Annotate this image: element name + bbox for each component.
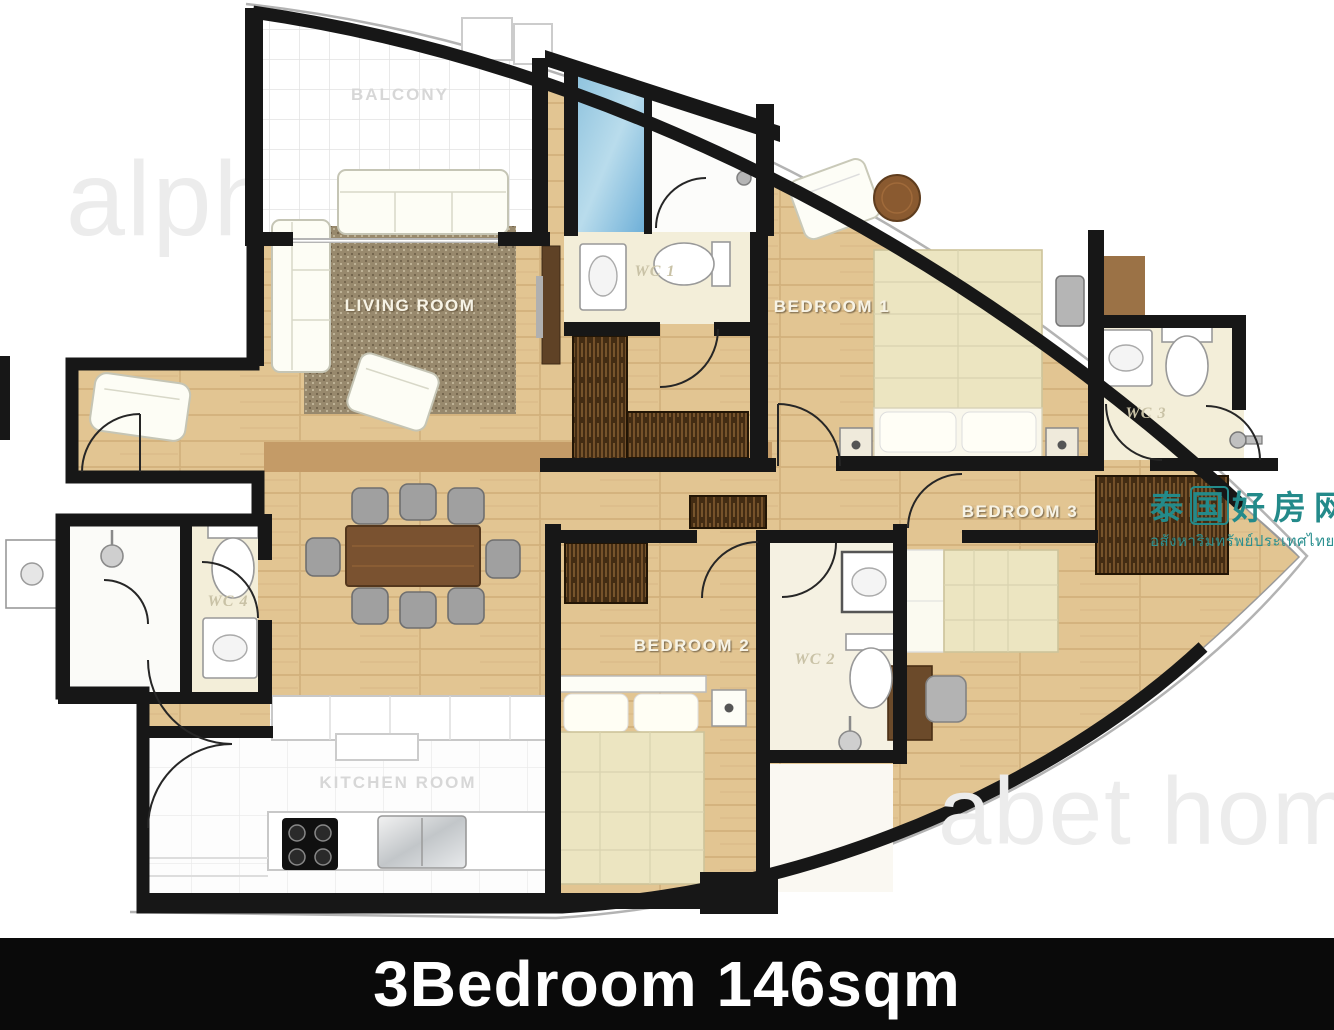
plan-title: 3Bedroom 146sqm [373,947,961,1021]
wardrobe-corridor [690,496,766,528]
bedroom1-label: BEDROOM 1 [774,297,890,316]
watermark-thai: อสังหาริมทรัพย์ประเทศไทย [1150,532,1334,550]
wc3-label: WC 3 [1126,405,1167,422]
kitchen-sink [378,816,466,868]
wc2-sink [842,552,896,612]
sofa [338,170,508,234]
watermark-alphabet-left: alph [66,140,274,258]
floorplan-svg: alph [0,0,1334,940]
bedroom3-label: BEDROOM 3 [962,502,1078,521]
wc4-label: WC 4 [208,593,249,610]
wc4-sink [203,618,257,678]
plan-title-bar: 3Bedroom 146sqm [0,938,1334,1030]
wc2-label: WC 2 [795,651,836,668]
watermark-chinese: 泰国好房网 [1150,488,1334,527]
desk-chair [926,676,966,722]
round-table [874,175,920,221]
bedroom2-label: BEDROOM 2 [634,636,750,655]
floorplan-image: alph [0,0,1334,1030]
bed3 [900,550,1058,652]
wardrobe-bedroom1-b [627,412,748,458]
wc3-sink [1100,330,1152,386]
site-watermark: 泰国好房网 อสังหาริมทรัพย์ประเทศไทย [1150,487,1334,550]
utility-floor [70,526,180,692]
kitchen-label: KITCHEN ROOM [319,773,476,792]
balcony-label: BALCONY [351,85,449,104]
dining-table [346,526,480,586]
wardrobe-bedroom2 [565,543,647,603]
utility-sink [6,540,58,608]
kitchen-island [336,734,418,760]
wc1-label: WC 1 [635,263,676,280]
cooktop [282,818,338,870]
bedroom1-tv [1056,276,1084,326]
bed2-headboard [556,676,706,692]
bed2-nightstand [712,690,746,726]
living-room-label: LIVING ROOM [345,296,476,315]
wc1-sink [580,244,626,310]
watermark-alphabet-right: abet home [938,758,1334,865]
wardrobe-bedroom1-a [573,336,627,462]
